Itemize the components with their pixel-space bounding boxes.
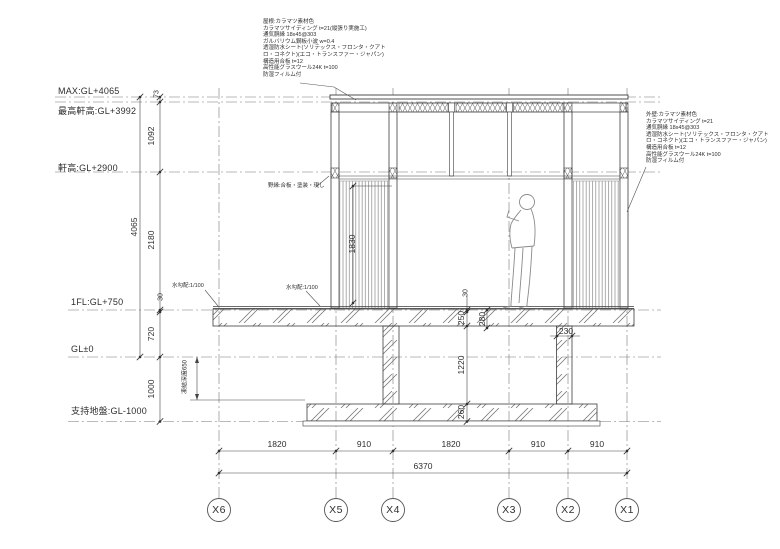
floor-slab xyxy=(213,309,634,326)
spec-line: 防湿フィルム付 xyxy=(263,72,386,79)
foundation-stem-left xyxy=(383,326,399,404)
roof xyxy=(330,95,628,112)
spec-line: 構造用合板 t=12 xyxy=(646,145,769,152)
grid-label-x1: X1 xyxy=(620,504,634,516)
footing xyxy=(307,404,597,421)
dim-30-center: 30 xyxy=(463,289,470,297)
section-drawing-canvas: MAX:GL+4065 最高軒高:GL+3992 軒高:GL+2900 1FL:… xyxy=(0,0,780,549)
louver-walls xyxy=(339,181,620,308)
dim-280: 280 xyxy=(477,312,487,326)
roof-spec-note: 屋根:カラマツ素材色 カラマツサイディング t=21(縦張り実施工) 通気胴縁 … xyxy=(263,19,386,78)
spec-line: 通気胴縁 18x45@303 xyxy=(263,32,386,39)
grid-label-x4: X4 xyxy=(386,504,400,516)
lean-concrete xyxy=(303,421,600,426)
spec-line: 通気胴縁 18x45@303 xyxy=(646,125,769,132)
dim-720: 720 xyxy=(146,327,156,341)
dim-1092: 1092 xyxy=(146,127,156,146)
spec-line: 防湿フィルム付 xyxy=(646,158,769,165)
dim-4065: 4065 xyxy=(129,218,139,237)
dim-250: 250 xyxy=(456,311,466,325)
person-figure xyxy=(503,195,535,309)
level-bearing: 支持地盤:GL-1000 xyxy=(71,404,147,417)
wall-spec-note: 外壁:カラマツ素材色 カラマツサイディング t=21 通気胴縁 18x45@30… xyxy=(646,112,769,165)
dim-1220: 1220 xyxy=(456,356,466,375)
spec-line: 高性能グラスウール24K t=100 xyxy=(263,65,386,72)
level-max: MAX:GL+4065 xyxy=(58,86,120,96)
spec-line: ロ・コネクト)(エコ・トランスファー・ジャパン) xyxy=(263,52,386,59)
spec-line: 外壁:カラマツ素材色 xyxy=(646,112,769,119)
grid-label-x6: X6 xyxy=(212,504,226,516)
ceiling-lines xyxy=(339,176,620,179)
spec-line: ロ・コネクト)(エコ・トランスファー・ジャパン) xyxy=(646,138,769,145)
grid-label-x2: X2 xyxy=(561,504,575,516)
dim-230: 230 xyxy=(559,326,573,336)
dim-1000: 1000 xyxy=(146,380,156,399)
slope-note-right: 水勾配:1/100 xyxy=(286,283,318,291)
level-gl: GL±0 xyxy=(71,344,94,354)
dim-frost-depth: 凍結深度650 xyxy=(180,360,189,394)
floor-and-foundation xyxy=(213,307,634,427)
foundation-stem-right xyxy=(557,326,573,404)
dim-910-b: 910 xyxy=(531,439,545,449)
dim-910-a: 910 xyxy=(357,439,371,449)
level-top-eave: 最高軒高:GL+3992 xyxy=(58,104,136,117)
grid-label-x3: X3 xyxy=(502,504,516,516)
dim-1830: 1830 xyxy=(347,235,357,254)
louver-right xyxy=(572,181,620,308)
spec-line: 透湿防水シート(ソリテックス・フロンタ・クアト xyxy=(263,45,386,52)
spec-line: 屋根:カラマツ素材色 xyxy=(263,19,386,26)
level-1fl: 1FL:GL+750 xyxy=(71,297,123,307)
dim-73: 73 xyxy=(154,90,161,98)
ceiling-note: 野縁:合板・塗装・現し xyxy=(268,181,325,189)
dim-6370: 6370 xyxy=(414,461,433,471)
dim-910-c: 910 xyxy=(590,439,604,449)
grid-label-x5: X5 xyxy=(329,504,343,516)
level-eave: 軒高:GL+2900 xyxy=(58,161,118,174)
dim-1820-b: 1820 xyxy=(442,439,461,449)
dim-2180: 2180 xyxy=(146,231,156,250)
slope-note-left: 水勾配:1/100 xyxy=(172,281,204,289)
dim-1820-a: 1820 xyxy=(268,439,287,449)
dim-30-left: 30 xyxy=(158,293,165,301)
dim-260: 260 xyxy=(456,405,466,419)
section-drawing-linework xyxy=(0,0,780,549)
